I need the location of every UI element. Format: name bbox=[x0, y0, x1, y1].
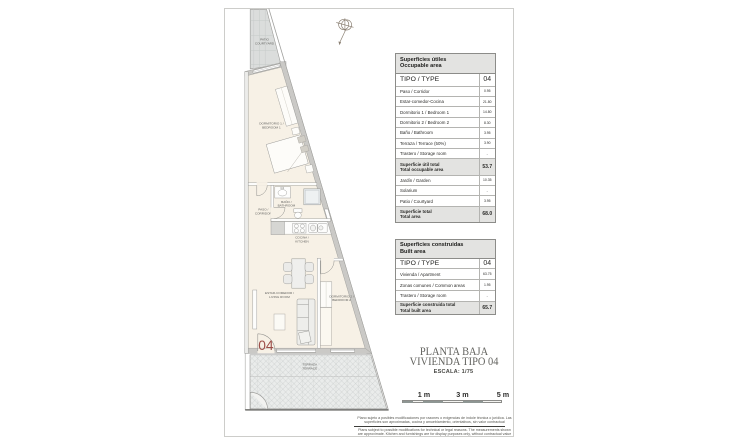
svg-text:04: 04 bbox=[258, 338, 274, 353]
svg-text:CORRIDOR: CORRIDOR bbox=[255, 212, 273, 216]
svg-text:BEDROOM 2: BEDROOM 2 bbox=[332, 298, 351, 302]
svg-text:BEDROOM 1: BEDROOM 1 bbox=[262, 125, 281, 129]
svg-text:COURTYARD: COURTYARD bbox=[255, 41, 275, 45]
svg-text:TERRACE: TERRACE bbox=[302, 366, 317, 370]
svg-text:LIVING ROOM: LIVING ROOM bbox=[269, 295, 290, 299]
svg-text:KITCHEN: KITCHEN bbox=[295, 239, 309, 243]
svg-text:BATHROOM: BATHROOM bbox=[278, 204, 296, 208]
